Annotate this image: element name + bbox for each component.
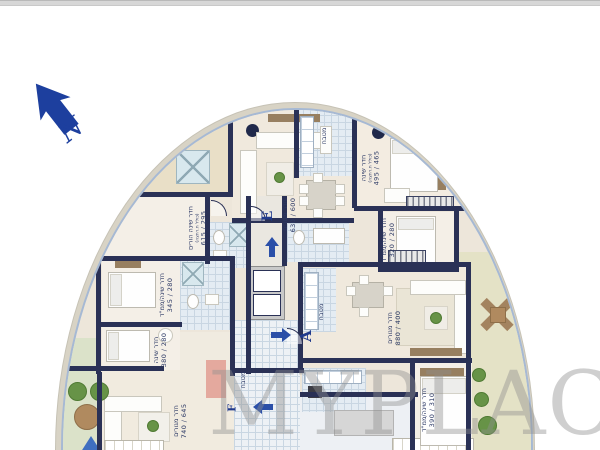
wall — [300, 392, 418, 397]
plant-icon — [478, 416, 497, 435]
chair-icon — [335, 196, 345, 206]
pillow-icon — [110, 274, 122, 306]
wall — [378, 267, 458, 272]
wall — [230, 256, 235, 376]
room-label-saferoom-ne: חדר שינה/ממ"ד 320 / 280 — [381, 218, 397, 262]
tv-cabinet-icon — [410, 348, 462, 356]
sofa-icon — [410, 280, 466, 295]
wall — [97, 372, 102, 450]
plant-icon — [85, 164, 98, 177]
plant-icon — [137, 113, 150, 126]
dining-table-icon — [306, 180, 336, 210]
wall — [96, 192, 101, 374]
toilet-icon — [187, 294, 199, 309]
room-label-master-bedroom: חדר שינה הורים (כולל ח.רחצה) 615 / 295 — [188, 206, 209, 250]
sofa-icon — [104, 396, 162, 412]
building-interior: E A F חדר שינה הורים (כולל ח.רחצה) 615 /… — [61, 108, 533, 450]
room-label-living-sw: חדר מגורים 740 / 645 — [173, 404, 189, 439]
headboard-icon — [420, 368, 464, 376]
toilet-icon — [213, 230, 225, 245]
tree-icon — [68, 382, 87, 401]
wall — [96, 192, 233, 197]
chair-icon — [313, 208, 323, 218]
elevator-car — [253, 270, 281, 292]
north-arrow: N — [18, 72, 98, 160]
wall — [352, 108, 357, 208]
plant-icon — [158, 108, 171, 121]
accent-pink-block — [206, 360, 226, 398]
chair-icon — [359, 275, 369, 285]
wall — [228, 116, 233, 196]
apartment-letter-f: F — [226, 404, 239, 412]
wall — [246, 196, 251, 374]
pillow-icon — [392, 140, 436, 154]
room-name: חדר שינה הורים — [188, 206, 196, 250]
room-label-kitchen-f: מטבח — [240, 372, 248, 389]
room-name: חדר שינה — [361, 151, 369, 186]
bathtub-icon — [313, 228, 345, 244]
door-arc — [211, 200, 227, 216]
room-dims: 740 / 645 — [181, 404, 189, 439]
chair-icon — [346, 286, 356, 296]
entrance-arrow-left — [251, 398, 275, 416]
sink-icon — [205, 294, 219, 305]
wood-table-icon — [490, 307, 506, 323]
wardrobe-icon — [104, 440, 164, 450]
room-label-living-e: חדר מגורים 630 / 600 — [282, 198, 298, 233]
room-dims: 615 / 295 — [201, 206, 209, 250]
chair-icon — [383, 286, 393, 296]
room-dims: 495 / 465 — [374, 151, 382, 186]
chair-icon — [335, 184, 345, 194]
floor-plan-page: N — [0, 0, 600, 450]
plant-icon — [472, 368, 486, 382]
room-name: מטבח — [321, 128, 329, 145]
apartment-letter-a: A — [297, 330, 315, 342]
room-label-kitchen-e: מטבח — [321, 128, 329, 145]
shower-icon — [182, 262, 204, 286]
kitchen-counter-icon — [300, 116, 314, 168]
wall — [96, 256, 234, 261]
chair-icon — [313, 173, 323, 183]
kitchen-counter-icon — [304, 370, 362, 384]
apartment-letter-e: E — [260, 211, 276, 222]
wall — [466, 262, 471, 450]
window-top-strip — [0, 0, 600, 6]
room-name: מטבח — [318, 304, 326, 321]
dining-table-icon — [352, 282, 384, 308]
room-dims: 345 / 280 — [167, 273, 175, 317]
parasol-table-icon — [176, 150, 210, 184]
wall — [61, 366, 164, 371]
desk-icon — [115, 260, 141, 268]
wall — [96, 322, 182, 327]
room-label-bedroom-ne: חדר שינה (כולל ח.רחצה) 495 / 465 — [361, 151, 382, 186]
table-icon — [334, 410, 394, 436]
north-arrow-icon: N — [18, 72, 98, 160]
room-dims: 880 / 400 — [395, 311, 403, 346]
entrance-arrow-up — [263, 235, 281, 259]
wall — [294, 108, 299, 178]
entrance-arrow-right — [269, 326, 293, 344]
wall — [354, 206, 468, 211]
wall — [302, 262, 470, 267]
headboard-icon — [438, 136, 446, 190]
chair-icon — [299, 196, 309, 206]
pillow-icon — [398, 218, 434, 230]
room-label-saferoom-w: חדר שינה/ממ"ד 345 / 280 — [159, 273, 175, 317]
room-name: מטבח — [240, 372, 248, 389]
room-dims: 380 / 280 — [161, 333, 169, 368]
room-label-living-a: חדר מגורים 880 / 400 — [387, 311, 403, 346]
kitchen-counter-icon — [304, 272, 319, 330]
chair-icon — [299, 184, 309, 194]
plant-icon — [430, 312, 442, 324]
plant-icon — [274, 172, 285, 183]
wall — [302, 358, 472, 363]
room-label-kitchen-a: מטבח — [318, 304, 326, 321]
room-dims: 630 / 600 — [290, 198, 298, 233]
room-label-saferoom-se: חדר שינה/ממ"ד 390 / 310 — [421, 388, 437, 432]
wall — [298, 262, 303, 372]
wall — [410, 362, 415, 450]
room-dims: 390 / 310 — [429, 388, 437, 432]
pillow-icon — [108, 332, 119, 360]
plant-icon — [474, 392, 489, 407]
lamp-icon — [372, 126, 385, 139]
plant-icon — [147, 420, 159, 432]
room-label-bedroom-w: חדר שינה 380 / 280 — [153, 333, 169, 368]
chair-icon — [359, 307, 369, 317]
room-dims: 320 / 280 — [389, 218, 397, 262]
elevator-car — [253, 294, 281, 316]
